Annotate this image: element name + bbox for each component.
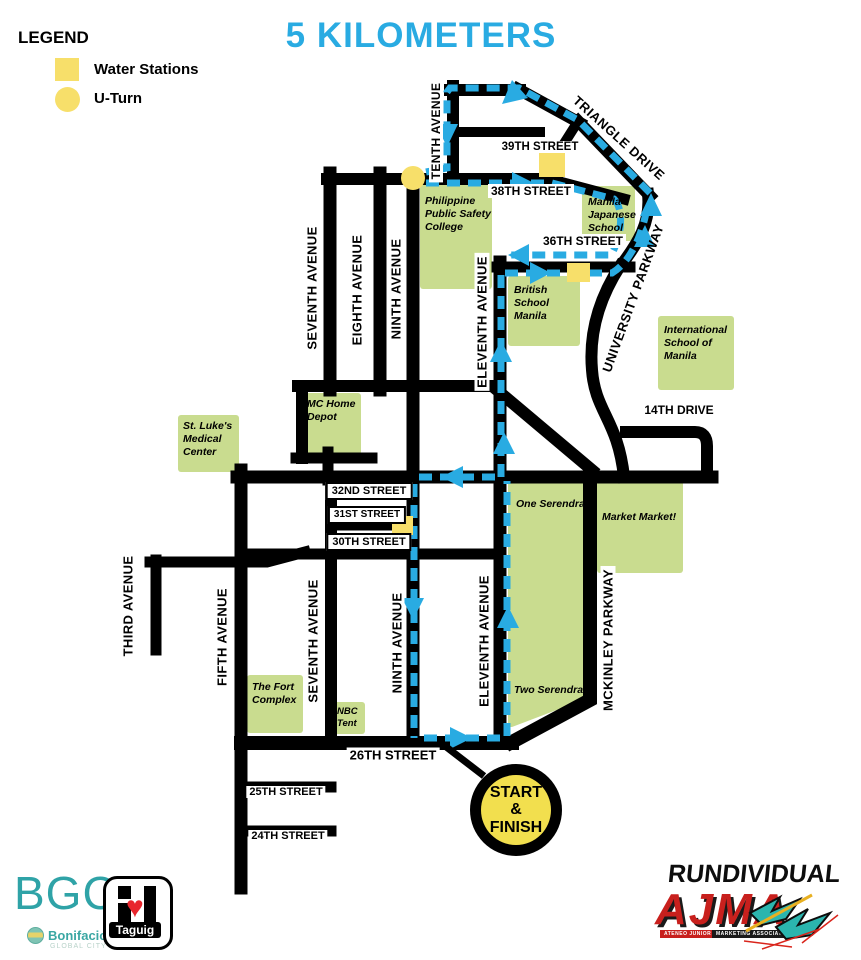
street-label-mckinley-parkway: MCKINLEY PARKWAY (601, 566, 616, 714)
street-label-36th-street: 36TH STREET (540, 234, 626, 248)
arrow-32nd-west (441, 466, 463, 488)
taguig-heart-icon: ♥ (126, 893, 144, 923)
street-label-38th-street: 38TH STREET (488, 184, 574, 198)
place-label-market-market: Market Market! (602, 511, 676, 524)
street-label-ninth-avenue-lower: NINTH AVENUE (390, 590, 405, 697)
street-label-seventh-avenue-lower: SEVENTH AVENUE (306, 576, 321, 705)
water-station-36th (567, 263, 590, 282)
street-label-ninth-avenue-upper: NINTH AVENUE (389, 236, 404, 343)
place-label-one-serendra: One Serendra (516, 498, 585, 511)
street-label-tenth-avenue: TENTH AVENUE (429, 80, 443, 183)
ajma-graffiti-art (742, 885, 852, 955)
block-market-market (597, 481, 683, 573)
place-label-international-school-manila: International School of Manila (664, 324, 727, 363)
street-label-25th-street: 25TH STREET (246, 786, 325, 798)
bgc-logo: BGC (14, 866, 117, 920)
place-label-manila-japanese-school: Manila Japanese School (588, 196, 636, 235)
ajma-subtitle-left: ATENEO JUNIOR (660, 930, 715, 938)
place-label-st-lukes: St. Luke's Medical Center (183, 420, 232, 459)
taguig-logo: ♥ Taguig (103, 876, 173, 950)
start-finish-label: START & FINISH (490, 784, 542, 836)
street-label-39th-street: 39TH STREET (499, 141, 582, 153)
street-label-26th-street: 26TH STREET (347, 748, 440, 763)
place-label-nbc-tent: NBC Tent (337, 706, 358, 730)
bonifacio-global-city-text: GLOBAL CITY (50, 943, 107, 950)
street-label-fifth-avenue: FIFTH AVENUE (215, 585, 230, 689)
street-label-24th-street: 24TH STREET (248, 830, 327, 842)
road-kalayaan-diagonal (497, 390, 592, 470)
street-label-seventh-avenue-upper: SEVENTH AVENUE (305, 223, 320, 352)
street-label-14th-drive: 14TH DRIVE (641, 403, 716, 417)
race-map-page: 5 KILOMETERS LEGEND Water Stations U-Tur… (0, 0, 861, 960)
street-label-32nd-street: 32ND STREET (326, 482, 413, 500)
road-14th-drive-loop (626, 432, 707, 477)
legend-water-label: Water Stations (94, 61, 198, 78)
start-finish-pointer (445, 746, 484, 776)
bonifacio-logo-icon (27, 927, 44, 944)
legend-uturn-label: U-Turn (94, 90, 142, 107)
road-third-avenue-connector (150, 552, 305, 562)
taguig-logo-text: Taguig (109, 922, 161, 938)
taguig-l-icon (144, 886, 156, 925)
street-label-eleventh-avenue-lower: ELEVENTH AVENUE (477, 572, 492, 710)
place-label-mc-home-depot: MC Home Depot (307, 398, 355, 424)
place-label-british-school-manila: British School Manila (514, 284, 549, 323)
legend-water-station-icon (55, 58, 79, 81)
street-label-eighth-avenue: EIGHTH AVENUE (350, 232, 365, 349)
place-label-two-serendra: Two Serendra (514, 684, 583, 697)
arrow-ninth-south (402, 598, 424, 620)
uturn-marker-38th-ninth (401, 166, 425, 190)
water-station-39th (539, 152, 565, 177)
street-label-third-avenue: THIRD AVENUE (121, 553, 136, 660)
bonifacio-logo-text: Bonifacio (48, 928, 107, 943)
legend-uturn-icon (55, 87, 80, 112)
page-title: 5 KILOMETERS (286, 16, 557, 56)
street-label-31st-street: 31ST STREET (328, 506, 406, 524)
street-label-30th-street: 30TH STREET (326, 533, 411, 551)
place-label-philippine-public-safety-college: Philippine Public Safety College (425, 195, 491, 234)
street-label-eleventh-avenue-upper: ELEVENTH AVENUE (475, 253, 490, 391)
legend-heading: LEGEND (18, 28, 89, 48)
place-label-fort-complex: The Fort Complex (252, 681, 296, 707)
